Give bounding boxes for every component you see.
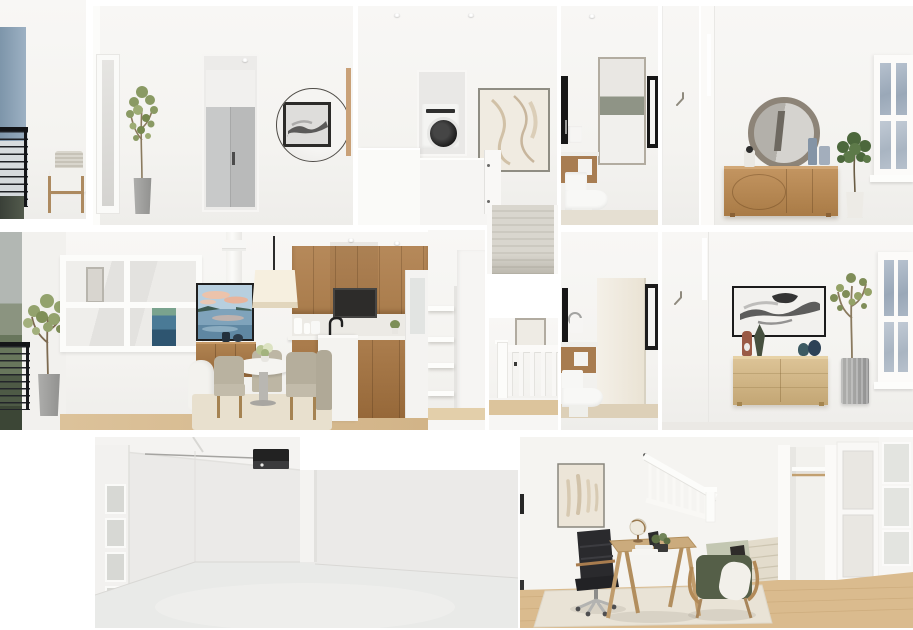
- dresser-top: [724, 166, 838, 169]
- pillar-highlight: [707, 34, 711, 96]
- fluted-dresser: [724, 166, 838, 216]
- column-capital: [222, 240, 246, 248]
- bathroom-floor: [561, 210, 658, 225]
- half-wall: [358, 148, 420, 225]
- vase: [819, 146, 830, 165]
- recessed-light: [394, 13, 400, 17]
- table-pedestal: [259, 372, 268, 402]
- panel-laundry-hall: [358, 6, 557, 225]
- mirror-reflection-sliver: [774, 111, 785, 151]
- jar-lid: [746, 146, 753, 153]
- cabinet-side-panel: [457, 250, 485, 410]
- panel-staircase-carpet: [487, 205, 558, 274]
- hinge: [487, 164, 490, 167]
- panel-linen-closet: [428, 230, 485, 430]
- potted-tree: [121, 80, 163, 186]
- wood-trim-strip: [346, 68, 351, 156]
- panel-living-kitchen: [0, 232, 428, 430]
- wall-hook-icon: [673, 291, 685, 305]
- window: [874, 55, 913, 177]
- newel-detail: [514, 362, 517, 366]
- glass-panel-door: [837, 442, 879, 589]
- closet-shelf: [428, 306, 454, 311]
- console-decor: [222, 332, 230, 342]
- chair-leg: [48, 176, 51, 213]
- door-handle: [232, 152, 235, 165]
- tall-vase: [808, 138, 817, 165]
- panel-upper-hallway: [93, 6, 353, 225]
- concrete-planter: [132, 178, 153, 214]
- towel-ring: [565, 120, 567, 134]
- floor-strip: [428, 408, 485, 420]
- panel-upper-bathroom: [561, 6, 658, 225]
- carpeted-stairs: [492, 205, 554, 274]
- window: [878, 252, 913, 382]
- railing-post: [24, 127, 27, 207]
- ink-wash-artwork: [732, 286, 826, 337]
- plant-pot: [392, 328, 398, 334]
- recessed-light: [468, 13, 474, 17]
- framed-figure-art: [558, 464, 604, 527]
- half-wall: [420, 158, 490, 225]
- closet-shelf: [428, 363, 454, 368]
- ink-art: [734, 288, 824, 335]
- round-mirror: [276, 88, 350, 162]
- stair-stringer: [554, 205, 558, 274]
- washer-alcove: [417, 70, 467, 156]
- door-glass: [410, 278, 425, 334]
- pendant-stem: [273, 236, 275, 270]
- recessed-light: [394, 241, 400, 245]
- closet-shelf: [428, 337, 454, 342]
- dining-chair-right: [286, 352, 319, 420]
- floorplan-render: [0, 0, 913, 630]
- panel-upper-hall-nook: [662, 6, 699, 225]
- lower-wall: [489, 415, 558, 430]
- white-pitcher: [304, 323, 310, 334]
- wall-column: [300, 470, 314, 562]
- window-pane: [880, 121, 891, 169]
- garage-door-opener: [253, 449, 289, 469]
- ribbed-gray-planter: [841, 358, 869, 404]
- window-sill: [870, 175, 913, 182]
- gray-closet-doors: [206, 107, 255, 207]
- sink-front: [574, 352, 588, 366]
- leaning-floor-mirror: [96, 54, 120, 214]
- closet-nook: [202, 54, 259, 212]
- wall-seam: [708, 232, 709, 430]
- concrete-pot: [36, 374, 62, 416]
- recessed-light: [242, 58, 248, 62]
- planter-ribs: [841, 358, 869, 404]
- panel-main-bedroom: [662, 232, 913, 430]
- window-pane: [880, 63, 891, 115]
- garage-scene: [95, 437, 518, 628]
- washer-controls: [426, 109, 455, 113]
- recessed-light: [589, 14, 595, 18]
- wall-pillar: [701, 6, 715, 225]
- stair-shadow: [492, 205, 554, 274]
- dresser-leg: [730, 213, 735, 217]
- white-pot: [845, 192, 865, 218]
- panel-main-bathroom: [561, 232, 658, 430]
- dresser-leg: [737, 402, 742, 406]
- white-jar: [311, 321, 320, 334]
- toilet-base: [569, 405, 588, 417]
- hand-towel: [570, 318, 583, 333]
- figurine-detail: [744, 343, 750, 351]
- panel-office-den: [520, 437, 913, 628]
- stacked-washer: [422, 104, 459, 149]
- dining-chair-partial: [316, 350, 332, 410]
- window-pane: [884, 322, 894, 372]
- hand-towel: [568, 126, 582, 143]
- table-base: [250, 400, 276, 406]
- mirror-glass: [648, 288, 655, 346]
- wall-hook-icon: [675, 92, 687, 106]
- window-pane: [898, 260, 908, 316]
- washer-door: [427, 117, 460, 150]
- blue-green-painting: [152, 305, 176, 346]
- blue-accent-wall: [0, 27, 26, 141]
- dresser-leg: [826, 213, 831, 217]
- balcony-floor-dark: [0, 196, 24, 219]
- counter-plant: [388, 320, 402, 334]
- vanity-mirror-bed-reflection: [598, 57, 646, 165]
- panel-upper-balcony: [0, 0, 86, 219]
- interior-window: [60, 255, 202, 352]
- black-framed-mirror: [647, 76, 658, 148]
- centerpiece-vase: [261, 356, 269, 362]
- window-pane: [896, 63, 907, 115]
- kitchen-door: [405, 270, 428, 418]
- closet-shelf: [428, 391, 454, 396]
- window-pane: [898, 322, 908, 372]
- hinge: [487, 200, 490, 203]
- mirror-glass: [650, 80, 655, 144]
- newel-post: [497, 342, 508, 400]
- window-pane: [884, 260, 894, 316]
- tv-image: [198, 285, 252, 339]
- console-decor: [233, 334, 243, 342]
- window-mullion: [66, 302, 196, 308]
- floor-shadow: [662, 422, 913, 430]
- dresser-leg: [819, 402, 824, 406]
- dresser-routing: [732, 174, 786, 210]
- chair-rail: [48, 191, 84, 194]
- panel-garage: [95, 437, 518, 628]
- chair-leg: [81, 176, 84, 213]
- open-door: [597, 278, 646, 412]
- toilet-bowl: [565, 190, 608, 210]
- drawer-seam: [733, 387, 828, 388]
- panel-stairwell: [489, 318, 558, 430]
- office-scene: [520, 437, 913, 628]
- baseboard: [428, 420, 485, 430]
- dining-chair-left: [214, 356, 245, 418]
- rust-figurine: [742, 331, 752, 356]
- panel-upper-bedroom: [701, 6, 913, 225]
- window-pane: [896, 121, 907, 169]
- drawer-seam: [733, 373, 828, 374]
- tall-olive-tree: [820, 268, 882, 364]
- oak-dresser: [733, 356, 828, 405]
- dresser-seam: [786, 169, 787, 213]
- window-sill: [874, 382, 913, 389]
- open-closet: [778, 445, 837, 585]
- pendant-drum-shade: [252, 270, 298, 308]
- bw-art: [286, 105, 328, 144]
- closet-divider: [454, 286, 457, 416]
- dresser-seam: [780, 359, 781, 402]
- mirror-glass: [102, 60, 114, 206]
- dresser-seam: [812, 169, 813, 213]
- wall-highlight: [702, 238, 707, 300]
- potted-plant-dark: [831, 129, 877, 199]
- nook-upper-wall: [206, 70, 255, 107]
- reflected-artwork: [283, 102, 331, 147]
- white-pitcher: [294, 318, 302, 334]
- reflected-frame: [86, 267, 104, 303]
- black-framed-mirror: [645, 284, 658, 350]
- lidded-jar: [744, 150, 755, 167]
